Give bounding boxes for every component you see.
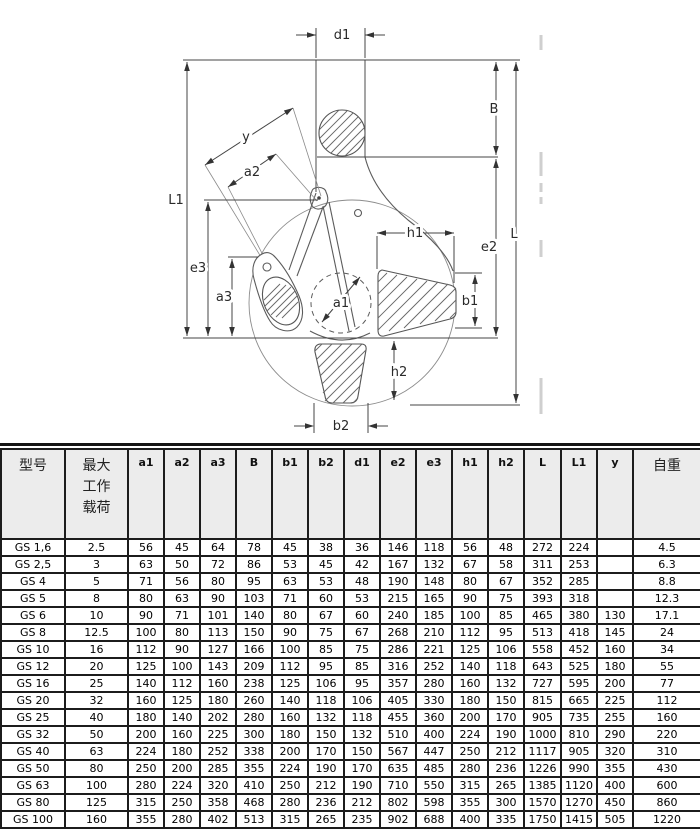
dim-label-e3: e3 (190, 261, 206, 276)
table-cell: 635 (380, 760, 416, 777)
table-cell: 72 (200, 556, 236, 573)
table-cell: 220 (633, 726, 700, 743)
table-cell: 63 (128, 556, 164, 573)
table-cell: 150 (488, 692, 524, 709)
table-row: GS 3250200160225300180150132510400224190… (1, 726, 700, 743)
table-cell: 268 (380, 624, 416, 641)
column-header-h1: h1 (452, 449, 488, 539)
table-cell: 727 (524, 675, 561, 692)
table-cell: 165 (416, 590, 452, 607)
table-cell: 160 (164, 726, 200, 743)
table-cell: 300 (488, 794, 524, 811)
table-cell: 286 (380, 641, 416, 658)
table-cell: 2.5 (65, 539, 128, 556)
column-header-weight: 自重 (633, 449, 700, 539)
table-cell: 643 (524, 658, 561, 675)
model-cell: GS 20 (1, 692, 65, 709)
table-cell: 400 (452, 811, 488, 828)
table-cell: 130 (597, 607, 633, 624)
table-cell: 146 (380, 539, 416, 556)
table-cell: 252 (200, 743, 236, 760)
table-cell: 860 (633, 794, 700, 811)
table-cell: 485 (416, 760, 452, 777)
table-cell: 160 (200, 675, 236, 692)
table-cell: 48 (344, 573, 380, 590)
table-cell: 236 (488, 760, 524, 777)
table-cell: 80 (200, 573, 236, 590)
table-cell: 180 (597, 658, 633, 675)
dim-label-a1: a1 (333, 296, 349, 311)
table-cell: 56 (128, 539, 164, 556)
table-cell: 125 (452, 641, 488, 658)
hook-technical-drawing: d1 B y a2 L1 e3 a3 a1 h1 e2 L b1 h2 b2 (0, 0, 700, 440)
model-cell: GS 4 (1, 573, 65, 590)
table-cell: 465 (524, 607, 561, 624)
table-cell: 4.5 (633, 539, 700, 556)
table-cell: 1117 (524, 743, 561, 760)
table-cell: 150 (344, 743, 380, 760)
table-cell: 5 (65, 573, 128, 590)
table-cell: 265 (308, 811, 344, 828)
model-cell: GS 2,5 (1, 556, 65, 573)
table-cell: 212 (344, 794, 380, 811)
model-cell: GS 10 (1, 641, 65, 658)
table-cell: 40 (65, 709, 128, 726)
table-cell: 143 (200, 658, 236, 675)
table-cell: 64 (200, 539, 236, 556)
model-cell: GS 5 (1, 590, 65, 607)
table-cell: 125 (272, 675, 308, 692)
table-cell: 106 (344, 692, 380, 709)
dim-label-L: L (510, 227, 518, 242)
hook-cross-section-bottom (315, 344, 366, 403)
table-cell: 95 (344, 675, 380, 692)
dim-label-L1: L1 (168, 193, 184, 208)
table-cell: 140 (236, 607, 272, 624)
table-cell: 180 (452, 692, 488, 709)
table-cell: 71 (272, 590, 308, 607)
table-cell: 167 (380, 556, 416, 573)
table-cell: 318 (561, 590, 597, 607)
table-cell: 209 (236, 658, 272, 675)
table-row: GS 2540180140202280160132118455360200170… (1, 709, 700, 726)
table-cell: 140 (164, 709, 200, 726)
column-header-L1: L1 (561, 449, 597, 539)
diagonal-extension-lines (205, 108, 321, 263)
table-cell: 1220 (633, 811, 700, 828)
column-header-e3: e3 (416, 449, 452, 539)
table-cell: 505 (597, 811, 633, 828)
table-cell: 132 (308, 709, 344, 726)
dim-label-a3: a3 (216, 290, 232, 305)
table-cell: 180 (272, 726, 308, 743)
table-cell: 238 (236, 675, 272, 692)
table-cell: 285 (200, 760, 236, 777)
table-cell: 400 (597, 777, 633, 794)
spec-sheet-page: d1 B y a2 L1 e3 a3 a1 h1 e2 L b1 h2 b2 型… (0, 0, 700, 832)
table-cell: 77 (633, 675, 700, 692)
table-cell: 285 (561, 573, 597, 590)
table-cell: 200 (272, 743, 308, 760)
table-cell: 200 (452, 709, 488, 726)
table-row: GS 4063224180252338200170150567447250212… (1, 743, 700, 760)
dim-label-a2: a2 (244, 165, 260, 180)
column-header-h2: h2 (488, 449, 524, 539)
table-cell: 85 (344, 658, 380, 675)
table-cell: 802 (380, 794, 416, 811)
table-cell: 212 (488, 743, 524, 760)
table-cell: 260 (236, 692, 272, 709)
table-cell: 127 (200, 641, 236, 658)
table-cell: 170 (308, 743, 344, 760)
table-cell: 58 (488, 556, 524, 573)
table-cell: 150 (308, 726, 344, 743)
table-cell: 71 (164, 607, 200, 624)
table-cell: 358 (200, 794, 236, 811)
table-row: GS 58806390103716053215165907539331812.3 (1, 590, 700, 607)
table-cell: 190 (308, 760, 344, 777)
table-cell: 315 (128, 794, 164, 811)
table-cell: 8.8 (633, 573, 700, 590)
table-cell: 12.3 (633, 590, 700, 607)
table-cell: 118 (488, 658, 524, 675)
column-header-d1: d1 (344, 449, 380, 539)
table-cell: 810 (561, 726, 597, 743)
table-cell: 315 (272, 811, 308, 828)
table-cell: 103 (236, 590, 272, 607)
table-cell: 140 (272, 692, 308, 709)
table-cell: 106 (488, 641, 524, 658)
table-cell: 1385 (524, 777, 561, 794)
table-cell: 90 (200, 590, 236, 607)
table-cell: 75 (344, 641, 380, 658)
table-cell: 513 (524, 624, 561, 641)
table-cell: 170 (344, 760, 380, 777)
chain-link-side-view (253, 253, 307, 331)
column-header-b2: b2 (308, 449, 344, 539)
table-cell: 236 (308, 794, 344, 811)
dim-label-h1: h1 (407, 226, 424, 241)
table-cell: 50 (164, 556, 200, 573)
model-cell: GS 25 (1, 709, 65, 726)
table-cell: 67 (308, 607, 344, 624)
table-cell: 598 (416, 794, 452, 811)
table-cell: 393 (524, 590, 561, 607)
table-cell: 280 (236, 709, 272, 726)
table-cell: 160 (633, 709, 700, 726)
table-cell: 311 (524, 556, 561, 573)
table-cell: 405 (380, 692, 416, 709)
table-cell: 160 (65, 811, 128, 828)
table-cell: 450 (597, 794, 633, 811)
table-cell: 42 (344, 556, 380, 573)
table-cell: 550 (416, 777, 452, 794)
header-row: 型号最大 工作 载荷a1a2a3Bb1b2d1e2e3h1h2LL1y自重 (1, 449, 700, 539)
chain-link-cross-section-top (319, 110, 365, 156)
table-cell: 180 (164, 743, 200, 760)
table-cell: 1000 (524, 726, 561, 743)
table-cell: 280 (452, 760, 488, 777)
dim-label-b1: b1 (462, 294, 479, 309)
dimensions-table-section: 型号最大 工作 载荷a1a2a3Bb1b2d1e2e3h1h2LL1y自重 GS… (0, 443, 700, 829)
table-cell: 100 (164, 658, 200, 675)
table-cell (597, 590, 633, 607)
table-cell: 12.5 (65, 624, 128, 641)
table-cell: 905 (561, 743, 597, 760)
dim-label-B: B (490, 102, 499, 117)
table-cell: 250 (272, 777, 308, 794)
pivot-center-dot (317, 196, 321, 200)
table-row: GS 1,62.55645647845383614611856482722244… (1, 539, 700, 556)
table-cell: 400 (416, 726, 452, 743)
column-header-y: y (597, 449, 633, 539)
table-cell: 132 (416, 556, 452, 573)
table-cell: 140 (452, 658, 488, 675)
column-header-e2: e2 (380, 449, 416, 539)
table-cell: 118 (416, 539, 452, 556)
table-cell: 280 (128, 777, 164, 794)
table-cell: 85 (308, 641, 344, 658)
table-row: GS 6109071101140806760240185100854653801… (1, 607, 700, 624)
column-header-L: L (524, 449, 561, 539)
table-cell: 688 (416, 811, 452, 828)
table-cell: 335 (488, 811, 524, 828)
table-cell: 80 (65, 760, 128, 777)
table-row: GS 457156809563534819014880673522858.8 (1, 573, 700, 590)
table-cell: 355 (597, 760, 633, 777)
table-cell: 710 (380, 777, 416, 794)
model-cell: GS 50 (1, 760, 65, 777)
table-cell: 34 (633, 641, 700, 658)
table-cell: 100 (452, 607, 488, 624)
model-cell: GS 8 (1, 624, 65, 641)
table-row: GS 6310028022432041025021219071055031526… (1, 777, 700, 794)
table-cell: 36 (344, 539, 380, 556)
table-cell: 67 (488, 573, 524, 590)
table-cell: 150 (236, 624, 272, 641)
table-cell (597, 573, 633, 590)
table-cell: 45 (272, 539, 308, 556)
table-row: GS 812.510080113150907567268210112955134… (1, 624, 700, 641)
table-cell: 338 (236, 743, 272, 760)
table-cell: 452 (561, 641, 597, 658)
table-row: GS 1625140112160238125106953572801601327… (1, 675, 700, 692)
table-cell: 558 (524, 641, 561, 658)
table-cell: 250 (164, 794, 200, 811)
table-cell: 224 (272, 760, 308, 777)
table-cell: 90 (452, 590, 488, 607)
table-row: GS 2032160125180260140118106405330180150… (1, 692, 700, 709)
table-cell: 210 (416, 624, 452, 641)
table-cell: 17.1 (633, 607, 700, 624)
table-cell: 132 (344, 726, 380, 743)
table-cell: 145 (597, 624, 633, 641)
table-cell: 78 (236, 539, 272, 556)
table-cell: 101 (200, 607, 236, 624)
table-cell: 20 (65, 658, 128, 675)
table-cell: 86 (236, 556, 272, 573)
table-cell: 252 (416, 658, 452, 675)
dim-label-e2: e2 (481, 240, 497, 255)
table-cell: 265 (488, 777, 524, 794)
table-cell: 905 (524, 709, 561, 726)
dim-label-d1: d1 (334, 28, 351, 43)
table-cell: 225 (597, 692, 633, 709)
table-cell: 90 (128, 607, 164, 624)
table-cell: 225 (200, 726, 236, 743)
table-cell: 815 (524, 692, 561, 709)
table-cell: 355 (128, 811, 164, 828)
table-cell: 118 (344, 709, 380, 726)
table-cell: 95 (308, 658, 344, 675)
table-cell: 3 (65, 556, 128, 573)
table-cell: 112 (128, 641, 164, 658)
model-cell: GS 40 (1, 743, 65, 760)
column-header-b1: b1 (272, 449, 308, 539)
table-row: GS 1016112901271661008575286221125106558… (1, 641, 700, 658)
table-cell: 525 (561, 658, 597, 675)
table-cell: 250 (128, 760, 164, 777)
model-cell: GS 100 (1, 811, 65, 828)
model-cell: GS 6 (1, 607, 65, 624)
table-cell: 280 (272, 794, 308, 811)
table-cell: 455 (380, 709, 416, 726)
table-cell: 402 (200, 811, 236, 828)
table-cell: 1415 (561, 811, 597, 828)
table-cell: 67 (452, 556, 488, 573)
model-cell: GS 80 (1, 794, 65, 811)
table-cell: 67 (344, 624, 380, 641)
table-cell: 148 (416, 573, 452, 590)
table-cell: 160 (452, 675, 488, 692)
table-cell: 53 (272, 556, 308, 573)
table-cell: 60 (308, 590, 344, 607)
table-cell: 75 (308, 624, 344, 641)
column-header-model: 型号 (1, 449, 65, 539)
table-cell: 430 (633, 760, 700, 777)
column-header-B: B (236, 449, 272, 539)
table-cell: 1570 (524, 794, 561, 811)
table-cell: 595 (561, 675, 597, 692)
table-cell: 112 (452, 624, 488, 641)
table-cell (597, 556, 633, 573)
table-cell: 63 (272, 573, 308, 590)
table-cell: 1226 (524, 760, 561, 777)
table-cell: 290 (597, 726, 633, 743)
table-cell: 90 (164, 641, 200, 658)
table-cell: 190 (344, 777, 380, 794)
table-cell: 468 (236, 794, 272, 811)
table-cell: 300 (236, 726, 272, 743)
table-cell: 100 (272, 641, 308, 658)
table-cell: 75 (488, 590, 524, 607)
dim-label-b2: b2 (333, 419, 350, 434)
table-cell: 990 (561, 760, 597, 777)
table-cell: 45 (164, 539, 200, 556)
table-cell: 410 (236, 777, 272, 794)
model-cell: GS 63 (1, 777, 65, 794)
table-cell: 95 (488, 624, 524, 641)
table-cell: 118 (308, 692, 344, 709)
table-cell: 24 (633, 624, 700, 641)
table-cell: 132 (488, 675, 524, 692)
column-header-a1: a1 (128, 449, 164, 539)
table-cell: 200 (164, 760, 200, 777)
table-cell: 56 (164, 573, 200, 590)
table-cell: 53 (308, 573, 344, 590)
dimensions-table: 型号最大 工作 载荷a1a2a3Bb1b2d1e2e3h1h2LL1y自重 GS… (0, 448, 700, 829)
table-cell: 215 (380, 590, 416, 607)
table-cell: 16 (65, 641, 128, 658)
table-cell: 140 (128, 675, 164, 692)
table-cell: 100 (128, 624, 164, 641)
table-cell: 224 (452, 726, 488, 743)
table-cell: 6.3 (633, 556, 700, 573)
table-cell: 160 (272, 709, 308, 726)
table-cell: 316 (380, 658, 416, 675)
table-cell: 180 (128, 709, 164, 726)
model-cell: GS 12 (1, 658, 65, 675)
table-cell: 32 (65, 692, 128, 709)
table-cell: 100 (65, 777, 128, 794)
table-row: GS 5080250200285355224190170635485280236… (1, 760, 700, 777)
table-cell: 80 (272, 607, 308, 624)
table-cell: 600 (633, 777, 700, 794)
table-cell: 71 (128, 573, 164, 590)
table-cell: 45 (308, 556, 344, 573)
table-cell: 190 (488, 726, 524, 743)
table-cell: 320 (200, 777, 236, 794)
model-cell: GS 1,6 (1, 539, 65, 556)
table-row: GS 1220125100143209112958531625214011864… (1, 658, 700, 675)
table-cell: 360 (416, 709, 452, 726)
table-cell: 55 (633, 658, 700, 675)
table-cell: 38 (308, 539, 344, 556)
model-cell: GS 16 (1, 675, 65, 692)
table-cell (597, 539, 633, 556)
table-cell: 113 (200, 624, 236, 641)
table-cell: 280 (416, 675, 452, 692)
table-cell: 80 (164, 624, 200, 641)
table-cell: 224 (561, 539, 597, 556)
table-cell: 1270 (561, 794, 597, 811)
table-cell: 180 (200, 692, 236, 709)
table-cell: 355 (452, 794, 488, 811)
table-cell: 10 (65, 607, 128, 624)
table-cell: 63 (164, 590, 200, 607)
hook-cross-section-right (378, 270, 456, 336)
table-cell: 112 (633, 692, 700, 709)
table-cell: 665 (561, 692, 597, 709)
table-cell: 112 (164, 675, 200, 692)
table-cell: 240 (380, 607, 416, 624)
dim-label-y: y (242, 130, 250, 145)
table-cell: 25 (65, 675, 128, 692)
table-cell: 125 (128, 658, 164, 675)
table-cell: 380 (561, 607, 597, 624)
column-header-a2: a2 (164, 449, 200, 539)
table-cell: 224 (164, 777, 200, 794)
table-cell: 95 (236, 573, 272, 590)
table-cell: 80 (452, 573, 488, 590)
table-cell: 106 (308, 675, 344, 692)
table-cell: 902 (380, 811, 416, 828)
dim-label-h2: h2 (391, 365, 408, 380)
table-cell: 190 (380, 573, 416, 590)
table-cell: 255 (597, 709, 633, 726)
table-cell: 60 (344, 607, 380, 624)
table-cell: 1750 (524, 811, 561, 828)
